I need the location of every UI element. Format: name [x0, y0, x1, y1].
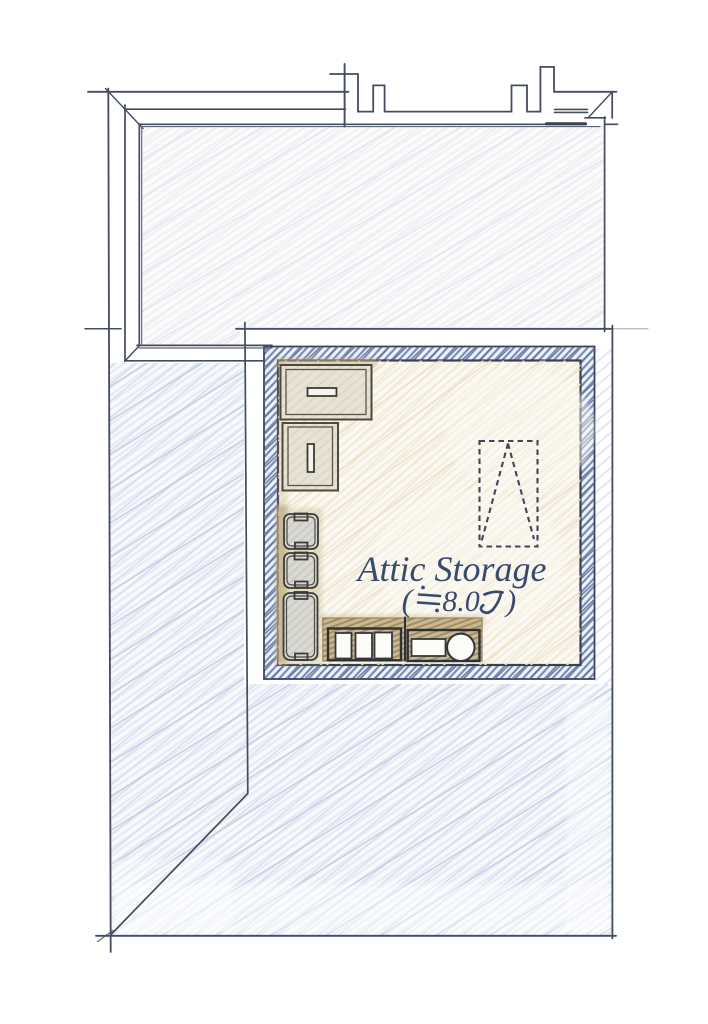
svg-text:8.0: 8.0 — [442, 585, 480, 618]
svg-text:Attic Storage: Attic Storage — [356, 549, 547, 589]
svg-text:): ) — [504, 583, 516, 618]
